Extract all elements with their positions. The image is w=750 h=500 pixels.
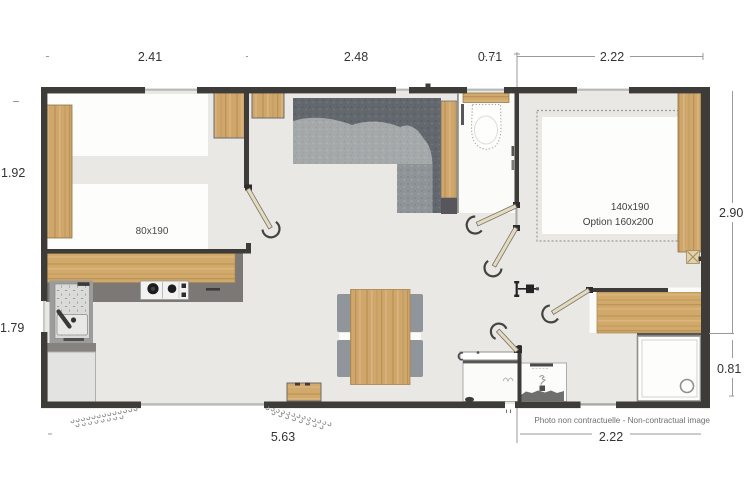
svg-text:2.22: 2.22 bbox=[599, 430, 623, 444]
svg-text:0.81: 0.81 bbox=[717, 362, 741, 376]
svg-text:2.22: 2.22 bbox=[600, 50, 624, 64]
svg-text:80x190: 80x190 bbox=[136, 226, 169, 237]
svg-text:1.92: 1.92 bbox=[1, 166, 25, 180]
svg-text:140x190: 140x190 bbox=[611, 202, 650, 213]
svg-text:5.63: 5.63 bbox=[271, 430, 295, 444]
svg-text:2.48: 2.48 bbox=[344, 50, 368, 64]
svg-text:Photo non contractuelle - Non-: Photo non contractuelle - Non-contractua… bbox=[534, 416, 710, 425]
svg-text:2.90: 2.90 bbox=[719, 206, 743, 220]
svg-text:Option 160x200: Option 160x200 bbox=[583, 217, 654, 228]
svg-text:2.41: 2.41 bbox=[138, 50, 162, 64]
svg-text:1.79: 1.79 bbox=[0, 321, 24, 335]
